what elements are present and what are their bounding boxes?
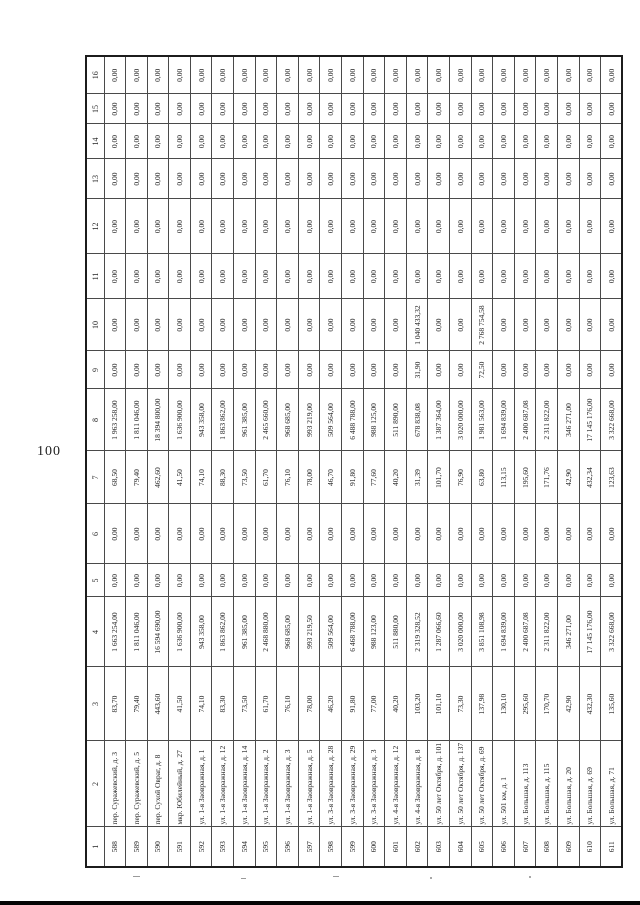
address-cell: пер. Сухой Овраг, д. 8 xyxy=(147,741,169,827)
value-cell: 0,00 xyxy=(298,159,320,199)
value-cell: 988 123,00 xyxy=(363,597,385,667)
data-table: 12345678910111213141516 588пер. Суражевс… xyxy=(85,55,623,868)
value-cell: 0,00 xyxy=(234,504,256,564)
value-cell: 195,60 xyxy=(514,451,536,504)
value-cell: 42,90 xyxy=(557,667,579,741)
row-number-cell: 599 xyxy=(342,827,364,867)
value-cell: 0,00 xyxy=(342,351,364,389)
value-cell: 0,00 xyxy=(147,299,169,351)
value-cell: 0,00 xyxy=(493,124,515,159)
value-cell: 0,00 xyxy=(557,124,579,159)
value-cell: 0,00 xyxy=(342,94,364,124)
value-cell: 0,00 xyxy=(557,504,579,564)
value-cell: 0,00 xyxy=(342,254,364,299)
value-cell: 31,39 xyxy=(406,451,428,504)
value-cell: 0,00 xyxy=(298,199,320,254)
value-cell: 0,00 xyxy=(320,56,342,94)
value-cell: 0,00 xyxy=(406,94,428,124)
value-cell: 61,70 xyxy=(255,667,277,741)
value-cell: 0,00 xyxy=(428,351,450,389)
value-cell: 1 636 900,00 xyxy=(169,389,191,451)
value-cell: 0,00 xyxy=(320,504,342,564)
address-cell: пер. Суражевский, д. 5 xyxy=(126,741,148,827)
row-number-cell: 600 xyxy=(363,827,385,867)
value-cell: 0,00 xyxy=(493,504,515,564)
value-cell: 0,00 xyxy=(126,504,148,564)
value-cell: 0,00 xyxy=(212,504,234,564)
value-cell: 0,00 xyxy=(493,159,515,199)
rotated-table-container: 12345678910111213141516 588пер. Суражевс… xyxy=(85,55,622,868)
value-cell: 443,60 xyxy=(147,667,169,741)
value-cell: 0,00 xyxy=(601,56,623,94)
value-cell: 0,00 xyxy=(557,56,579,94)
value-cell: 0,00 xyxy=(385,351,407,389)
value-cell: 0,00 xyxy=(536,199,558,254)
address-cell: ул. 4-я Заовражная, д. 8 xyxy=(406,741,428,827)
value-cell: 0,00 xyxy=(385,299,407,351)
row-number-cell: 605 xyxy=(471,827,493,867)
value-cell: 72,50 xyxy=(471,351,493,389)
value-cell: 0,00 xyxy=(385,199,407,254)
value-cell: 0,00 xyxy=(255,564,277,597)
value-cell: 41,50 xyxy=(169,451,191,504)
value-cell: 0,00 xyxy=(557,564,579,597)
value-cell: 0,00 xyxy=(363,351,385,389)
value-cell: 3 851 108,98 xyxy=(471,597,493,667)
value-cell: 0,00 xyxy=(406,159,428,199)
value-cell: 0,00 xyxy=(536,299,558,351)
value-cell: 0,00 xyxy=(363,504,385,564)
value-cell: 0,00 xyxy=(601,254,623,299)
value-cell: 0,00 xyxy=(428,56,450,94)
value-cell: 0,00 xyxy=(579,199,601,254)
scan-artifact xyxy=(241,878,246,879)
value-cell: 0,00 xyxy=(428,159,450,199)
value-cell: 0,00 xyxy=(169,159,191,199)
value-cell: 41,50 xyxy=(169,667,191,741)
value-cell: 1 863 862,00 xyxy=(212,389,234,451)
value-cell: 76,10 xyxy=(277,451,299,504)
value-cell: 3 020 000,00 xyxy=(450,389,472,451)
table-row: 598ул. 3-я Заовражная, д. 2846,20509 564… xyxy=(320,56,342,867)
value-cell: 0,00 xyxy=(514,159,536,199)
value-cell: 68,50 xyxy=(104,451,126,504)
value-cell: 0,00 xyxy=(363,94,385,124)
value-cell: 0,00 xyxy=(428,94,450,124)
value-cell: 0,00 xyxy=(557,94,579,124)
value-cell: 0,00 xyxy=(514,299,536,351)
value-cell: 0,00 xyxy=(514,94,536,124)
value-cell: 0,00 xyxy=(450,299,472,351)
value-cell: 77,00 xyxy=(363,667,385,741)
value-cell: 0,00 xyxy=(169,254,191,299)
value-cell: 0,00 xyxy=(471,94,493,124)
table-row: 592ул. 1-я Заовражная, д. 174,10943 358,… xyxy=(190,56,212,867)
value-cell: 0,00 xyxy=(536,351,558,389)
value-cell: 101,70 xyxy=(428,451,450,504)
value-cell: 42,90 xyxy=(557,451,579,504)
value-cell: 3 322 668,00 xyxy=(601,597,623,667)
value-cell: 0,00 xyxy=(406,254,428,299)
value-cell: 0,00 xyxy=(126,159,148,199)
column-header-13: 13 xyxy=(86,159,104,199)
value-cell: 0,00 xyxy=(126,254,148,299)
column-header-16: 16 xyxy=(86,56,104,94)
value-cell: 0,00 xyxy=(190,159,212,199)
value-cell: 0,00 xyxy=(255,56,277,94)
table-row: 601ул. 4-я Заовражная, д. 1240,20511 880… xyxy=(385,56,407,867)
row-number-cell: 596 xyxy=(277,827,299,867)
row-number-cell: 604 xyxy=(450,827,472,867)
address-cell: ул. Большая, д. 113 xyxy=(514,741,536,827)
value-cell: 0,00 xyxy=(212,159,234,199)
value-cell: 0,00 xyxy=(601,124,623,159)
value-cell: 0,00 xyxy=(255,199,277,254)
value-cell: 511 880,00 xyxy=(385,597,407,667)
value-cell: 0,00 xyxy=(342,504,364,564)
value-cell: 137,98 xyxy=(471,667,493,741)
value-cell: 1 636 900,00 xyxy=(169,597,191,667)
value-cell: 0,00 xyxy=(255,94,277,124)
value-cell: 0,00 xyxy=(536,124,558,159)
value-cell: 0,00 xyxy=(385,159,407,199)
value-cell: 0,00 xyxy=(104,199,126,254)
value-cell: 0,00 xyxy=(147,254,169,299)
address-cell: ул. 4-я Заовражная, д. 12 xyxy=(385,741,407,827)
table-row: 593ул. 1-я Заовражная, д. 1283,301 863 8… xyxy=(212,56,234,867)
value-cell: 0,00 xyxy=(471,124,493,159)
value-cell: 432,30 xyxy=(579,667,601,741)
value-cell: 0,00 xyxy=(169,56,191,94)
value-cell: 0,00 xyxy=(579,254,601,299)
value-cell: 1 963 258,00 xyxy=(104,389,126,451)
table-row: 602ул. 4-я Заовражная, д. 8103,202 319 3… xyxy=(406,56,428,867)
row-number-cell: 598 xyxy=(320,827,342,867)
value-cell: 6 488 788,00 xyxy=(342,389,364,451)
value-cell: 0,00 xyxy=(601,199,623,254)
value-cell: 0,00 xyxy=(450,504,472,564)
value-cell: 61,70 xyxy=(255,451,277,504)
value-cell: 0,00 xyxy=(234,94,256,124)
value-cell: 0,00 xyxy=(342,56,364,94)
value-cell: 1 811 046,00 xyxy=(126,597,148,667)
address-cell: ул. 3-я Заовражная, д. 3 xyxy=(363,741,385,827)
value-cell: 0,00 xyxy=(536,504,558,564)
value-cell: 0,00 xyxy=(234,124,256,159)
value-cell: 3 020 000,00 xyxy=(450,597,472,667)
value-cell: 0,00 xyxy=(514,199,536,254)
value-cell: 0,00 xyxy=(126,564,148,597)
value-cell: 170,70 xyxy=(536,667,558,741)
value-cell: 0,00 xyxy=(493,56,515,94)
value-cell: 0,00 xyxy=(234,299,256,351)
value-cell: 130,10 xyxy=(493,667,515,741)
value-cell: 0,00 xyxy=(536,159,558,199)
value-cell: 0,00 xyxy=(255,351,277,389)
value-cell: 0,00 xyxy=(471,199,493,254)
table-row: 600ул. 3-я Заовражная, д. 377,00988 123,… xyxy=(363,56,385,867)
value-cell: 76,90 xyxy=(450,451,472,504)
row-number-cell: 594 xyxy=(234,827,256,867)
value-cell: 0,00 xyxy=(234,159,256,199)
value-cell: 2 768 754,58 xyxy=(471,299,493,351)
value-cell: 961 385,00 xyxy=(234,597,256,667)
value-cell: 0,00 xyxy=(147,199,169,254)
value-cell: 0,00 xyxy=(557,199,579,254)
value-cell: 0,00 xyxy=(147,124,169,159)
value-cell: 678 838,08 xyxy=(406,389,428,451)
table-row: 588пер. Суражевский, д. 383,701 663 254,… xyxy=(104,56,126,867)
value-cell: 0,00 xyxy=(190,564,212,597)
table-row: 591мкр. Юбилейный, д. 2741,501 636 900,0… xyxy=(169,56,191,867)
value-cell: 509 564,00 xyxy=(320,597,342,667)
table-row: 603ул. 50 лет Октября, д. 101101,101 287… xyxy=(428,56,450,867)
value-cell: 0,00 xyxy=(320,124,342,159)
value-cell: 17 145 176,00 xyxy=(579,597,601,667)
value-cell: 0,00 xyxy=(104,124,126,159)
address-cell: ул. 1-я Заовражная, д. 14 xyxy=(234,741,256,827)
value-cell: 0,00 xyxy=(385,94,407,124)
value-cell: 0,00 xyxy=(212,254,234,299)
table-row: 595ул. 1-я Заовражная, д. 261,702 468 88… xyxy=(255,56,277,867)
address-cell: ул. 1-я Заовражная, д. 12 xyxy=(212,741,234,827)
value-cell: 0,00 xyxy=(147,504,169,564)
value-cell: 0,00 xyxy=(450,254,472,299)
value-cell: 0,00 xyxy=(190,124,212,159)
value-cell: 0,00 xyxy=(471,56,493,94)
value-cell: 0,00 xyxy=(450,94,472,124)
value-cell: 0,00 xyxy=(190,94,212,124)
value-cell: 0,00 xyxy=(298,504,320,564)
value-cell: 0,00 xyxy=(363,56,385,94)
value-cell: 0,00 xyxy=(277,351,299,389)
value-cell: 0,00 xyxy=(277,159,299,199)
value-cell: 0,00 xyxy=(298,124,320,159)
value-cell: 123,63 xyxy=(601,451,623,504)
value-cell: 509 564,00 xyxy=(320,389,342,451)
value-cell: 0,00 xyxy=(536,564,558,597)
value-cell: 0,00 xyxy=(277,299,299,351)
value-cell: 0,00 xyxy=(147,351,169,389)
value-cell: 0,00 xyxy=(255,159,277,199)
value-cell: 0,00 xyxy=(104,56,126,94)
value-cell: 135,60 xyxy=(601,667,623,741)
value-cell: 0,00 xyxy=(298,299,320,351)
value-cell: 0,00 xyxy=(190,351,212,389)
value-cell: 0,00 xyxy=(277,94,299,124)
row-number-cell: 597 xyxy=(298,827,320,867)
table-row: 604ул. 50 лет Октября, д. 13773,303 020 … xyxy=(450,56,472,867)
value-cell: 346 271,00 xyxy=(557,389,579,451)
value-cell: 0,00 xyxy=(212,124,234,159)
row-number-cell: 608 xyxy=(536,827,558,867)
column-header-6: 6 xyxy=(86,504,104,564)
value-cell: 73,50 xyxy=(234,451,256,504)
value-cell: 0,00 xyxy=(190,254,212,299)
value-cell: 0,00 xyxy=(277,124,299,159)
value-cell: 0,00 xyxy=(579,159,601,199)
column-header-1: 1 xyxy=(86,827,104,867)
table-row: 611ул. Большая, д. 71135,603 322 668,000… xyxy=(601,56,623,867)
value-cell: 0,00 xyxy=(514,124,536,159)
value-cell: 1 694 839,00 xyxy=(493,597,515,667)
value-cell: 0,00 xyxy=(169,199,191,254)
value-cell: 0,00 xyxy=(406,564,428,597)
table-row: 610ул. Большая, д. 69432,3017 145 176,00… xyxy=(579,56,601,867)
table-row: 589пер. Суражевский, д. 579,401 811 046,… xyxy=(126,56,148,867)
value-cell: 2 319 328,52 xyxy=(406,597,428,667)
value-cell: 0,00 xyxy=(385,56,407,94)
table-row: 608ул. Большая, д. 115170,702 311 822,00… xyxy=(536,56,558,867)
address-cell: ул. 501 км, д. 1 xyxy=(493,741,515,827)
value-cell: 0,00 xyxy=(450,56,472,94)
value-cell: 0,00 xyxy=(428,124,450,159)
value-cell: 0,00 xyxy=(234,56,256,94)
value-cell: 0,00 xyxy=(277,56,299,94)
value-cell: 0,00 xyxy=(169,504,191,564)
value-cell: 74,10 xyxy=(190,667,212,741)
value-cell: 0,00 xyxy=(471,254,493,299)
value-cell: 0,00 xyxy=(601,351,623,389)
value-cell: 3 322 668,00 xyxy=(601,389,623,451)
value-cell: 0,00 xyxy=(298,94,320,124)
value-cell: 73,30 xyxy=(450,667,472,741)
address-cell: ул. 3-я Заовражная, д. 28 xyxy=(320,741,342,827)
value-cell: 6 468 788,00 xyxy=(342,597,364,667)
value-cell: 2 465 660,00 xyxy=(255,389,277,451)
value-cell: 432,34 xyxy=(579,451,601,504)
value-cell: 0,00 xyxy=(169,124,191,159)
value-cell: 17 145 176,00 xyxy=(579,389,601,451)
value-cell: 0,00 xyxy=(104,159,126,199)
value-cell: 1 863 862,00 xyxy=(212,597,234,667)
value-cell: 113,15 xyxy=(493,451,515,504)
value-cell: 0,00 xyxy=(579,94,601,124)
value-cell: 0,00 xyxy=(493,254,515,299)
value-cell: 40,20 xyxy=(385,451,407,504)
value-cell: 0,00 xyxy=(601,159,623,199)
row-number-cell: 591 xyxy=(169,827,191,867)
value-cell: 0,00 xyxy=(428,299,450,351)
value-cell: 0,00 xyxy=(406,199,428,254)
value-cell: 1 287 066,60 xyxy=(428,597,450,667)
value-cell: 0,00 xyxy=(536,94,558,124)
column-header-7: 7 xyxy=(86,451,104,504)
column-header-12: 12 xyxy=(86,199,104,254)
value-cell: 0,00 xyxy=(493,299,515,351)
value-cell: 83,70 xyxy=(104,667,126,741)
value-cell: 0,00 xyxy=(342,159,364,199)
value-cell: 0,00 xyxy=(579,124,601,159)
value-cell: 295,60 xyxy=(514,667,536,741)
value-cell: 77,60 xyxy=(363,451,385,504)
value-cell: 46,70 xyxy=(320,451,342,504)
address-cell: ул. 3-я Заовражная, д. 29 xyxy=(342,741,364,827)
value-cell: 2 468 880,00 xyxy=(255,597,277,667)
row-number-cell: 607 xyxy=(514,827,536,867)
value-cell: 0,00 xyxy=(493,199,515,254)
value-cell: 0,00 xyxy=(298,56,320,94)
address-cell: ул. Большая, д. 71 xyxy=(601,741,623,827)
value-cell: 0,00 xyxy=(536,254,558,299)
address-cell: ул. 50 лет Октября, д. 69 xyxy=(471,741,493,827)
address-cell: ул. Большая, д. 20 xyxy=(557,741,579,827)
row-number-cell: 606 xyxy=(493,827,515,867)
table-header-row: 12345678910111213141516 xyxy=(86,56,104,867)
value-cell: 0,00 xyxy=(190,299,212,351)
value-cell: 0,00 xyxy=(579,299,601,351)
value-cell: 0,00 xyxy=(255,124,277,159)
value-cell: 346 271,00 xyxy=(557,597,579,667)
value-cell: 1 694 839,00 xyxy=(493,389,515,451)
value-cell: 0,00 xyxy=(406,124,428,159)
address-cell: ул. Большая, д. 115 xyxy=(536,741,558,827)
value-cell: 0,00 xyxy=(385,254,407,299)
value-cell: 0,00 xyxy=(450,159,472,199)
table-row: 596ул. 1-я Заовражная, д. 376,10968 685,… xyxy=(277,56,299,867)
value-cell: 101,10 xyxy=(428,667,450,741)
value-cell: 0,00 xyxy=(255,504,277,564)
value-cell: 1 663 254,00 xyxy=(104,597,126,667)
value-cell: 0,00 xyxy=(514,351,536,389)
value-cell: 0,00 xyxy=(385,564,407,597)
value-cell: 0,00 xyxy=(298,254,320,299)
table-row: 594ул. 1-я Заовражная, д. 1473,50961 385… xyxy=(234,56,256,867)
value-cell: 0,00 xyxy=(320,351,342,389)
column-header-8: 8 xyxy=(86,389,104,451)
value-cell: 1 040 433,32 xyxy=(406,299,428,351)
row-number-cell: 610 xyxy=(579,827,601,867)
value-cell: 2 400 687,08 xyxy=(514,389,536,451)
value-cell: 993 219,00 xyxy=(298,389,320,451)
value-cell: 0,00 xyxy=(169,351,191,389)
value-cell: 0,00 xyxy=(536,56,558,94)
value-cell: 0,00 xyxy=(234,351,256,389)
value-cell: 0,00 xyxy=(493,564,515,597)
value-cell: 18 394 800,00 xyxy=(147,389,169,451)
value-cell: 91,80 xyxy=(342,667,364,741)
value-cell: 79,40 xyxy=(126,667,148,741)
value-cell: 0,00 xyxy=(126,351,148,389)
value-cell: 31,90 xyxy=(406,351,428,389)
value-cell: 76,10 xyxy=(277,667,299,741)
value-cell: 0,00 xyxy=(601,504,623,564)
value-cell: 0,00 xyxy=(255,254,277,299)
value-cell: 0,00 xyxy=(212,299,234,351)
value-cell: 0,00 xyxy=(363,254,385,299)
value-cell: 0,00 xyxy=(190,504,212,564)
value-cell: 0,00 xyxy=(450,124,472,159)
scan-edge-bar xyxy=(0,901,640,905)
scan-artifact xyxy=(333,876,339,877)
value-cell: 2 400 687,08 xyxy=(514,597,536,667)
value-cell: 1 981 563,00 xyxy=(471,389,493,451)
row-number-cell: 602 xyxy=(406,827,428,867)
table-row: 590пер. Сухой Овраг, д. 8443,6016 594 69… xyxy=(147,56,169,867)
value-cell: 0,00 xyxy=(428,504,450,564)
address-cell: ул. 50 лет Октября, д. 137 xyxy=(450,741,472,827)
row-number-cell: 589 xyxy=(126,827,148,867)
value-cell: 0,00 xyxy=(493,94,515,124)
value-cell: 0,00 xyxy=(579,504,601,564)
value-cell: 0,00 xyxy=(104,351,126,389)
column-header-2: 2 xyxy=(86,741,104,827)
value-cell: 0,00 xyxy=(147,56,169,94)
row-number-cell: 601 xyxy=(385,827,407,867)
value-cell: 83,30 xyxy=(212,667,234,741)
value-cell: 0,00 xyxy=(277,254,299,299)
value-cell: 0,00 xyxy=(406,56,428,94)
